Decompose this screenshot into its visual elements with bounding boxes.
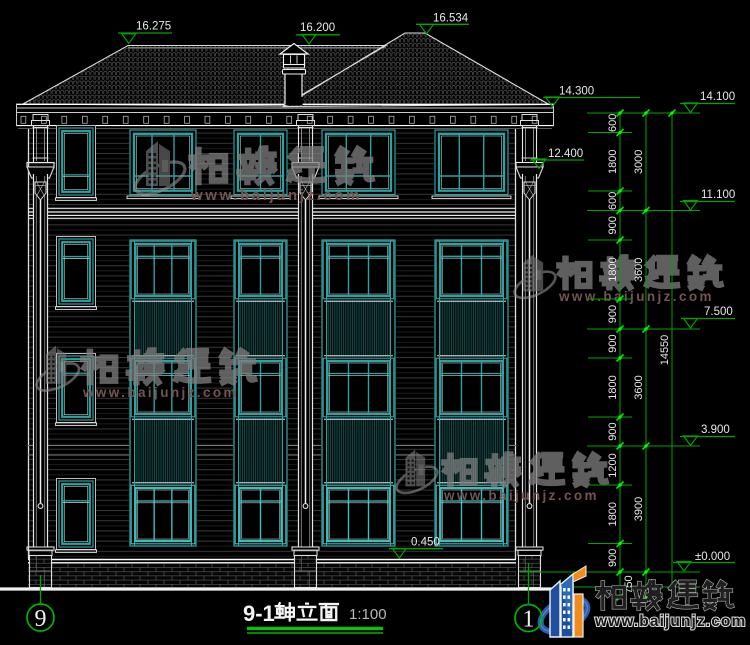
svg-text:9-1: 9-1 [243, 601, 275, 626]
svg-text:900: 900 [607, 549, 619, 567]
svg-text:www.baijunjz.com: www.baijunjz.com [558, 289, 714, 304]
svg-text:3900: 3900 [633, 497, 645, 521]
svg-text:0.450: 0.450 [411, 537, 440, 549]
svg-text:16.534: 16.534 [433, 13, 469, 25]
svg-text:9: 9 [35, 606, 47, 632]
svg-text:900: 900 [607, 305, 619, 323]
svg-text:7.500: 7.500 [704, 306, 733, 318]
svg-text:1:100: 1:100 [349, 606, 387, 623]
svg-text:600: 600 [607, 192, 619, 210]
svg-text:3.900: 3.900 [701, 424, 730, 436]
svg-text:14550: 14550 [659, 335, 671, 366]
svg-text:1: 1 [523, 607, 535, 633]
svg-text:1200: 1200 [607, 453, 619, 477]
svg-text:3600: 3600 [633, 258, 645, 282]
svg-text:3000: 3000 [633, 150, 645, 174]
svg-text:1800: 1800 [607, 502, 619, 526]
svg-text:12.400: 12.400 [548, 148, 583, 160]
svg-text:600: 600 [607, 114, 619, 132]
svg-text:16.200: 16.200 [300, 22, 335, 34]
svg-text:14.300: 14.300 [559, 86, 594, 98]
svg-text:1800: 1800 [607, 257, 619, 281]
svg-text:www.baijunjz.com: www.baijunjz.com [594, 613, 746, 630]
svg-text:16.275: 16.275 [136, 21, 171, 33]
svg-text:900: 900 [607, 422, 619, 440]
svg-text:www.baijunjz.com: www.baijunjz.com [190, 187, 362, 204]
svg-text:1800: 1800 [607, 150, 619, 174]
svg-text:www.baijunjz.com: www.baijunjz.com [82, 385, 238, 400]
svg-text:14.100: 14.100 [700, 91, 735, 103]
svg-text:11.100: 11.100 [701, 189, 735, 201]
svg-text:900: 900 [607, 216, 619, 234]
svg-text:900: 900 [607, 334, 619, 352]
svg-text:www.baijunjz.com: www.baijunjz.com [443, 488, 599, 503]
svg-text:1800: 1800 [607, 375, 619, 399]
svg-text:3600: 3600 [633, 375, 645, 399]
svg-text:±0.000: ±0.000 [695, 551, 730, 563]
